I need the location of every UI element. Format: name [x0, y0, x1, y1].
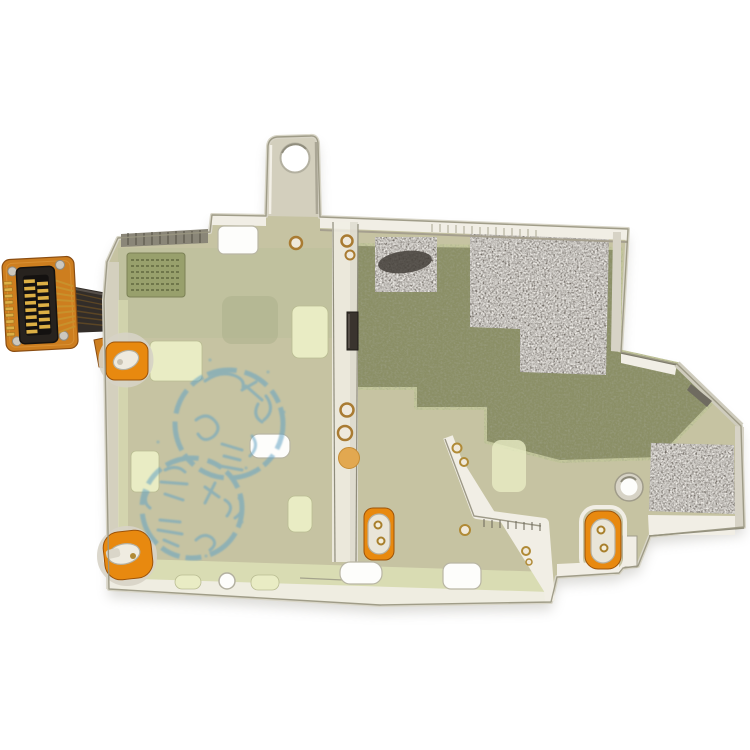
- center-rail: [332, 222, 358, 562]
- rivet-pad-top-left: [101, 335, 151, 385]
- thermal-pad-lower-right: [649, 443, 735, 514]
- mesh-antenna-patch: [127, 253, 185, 297]
- sim-card-reader-flex-photo: [0, 0, 750, 750]
- product-photo-figure: [0, 0, 750, 750]
- bottom-hole: [219, 573, 235, 589]
- board-connector: [16, 266, 58, 344]
- rivet-pad-bottom-middle: [364, 508, 394, 560]
- adhesive-dot: [339, 448, 360, 469]
- rivet-pad-bottom-right: [581, 507, 625, 573]
- screw-hole: [615, 473, 643, 501]
- mounting-tab: [266, 136, 320, 217]
- flex-cable-connector: [2, 256, 79, 352]
